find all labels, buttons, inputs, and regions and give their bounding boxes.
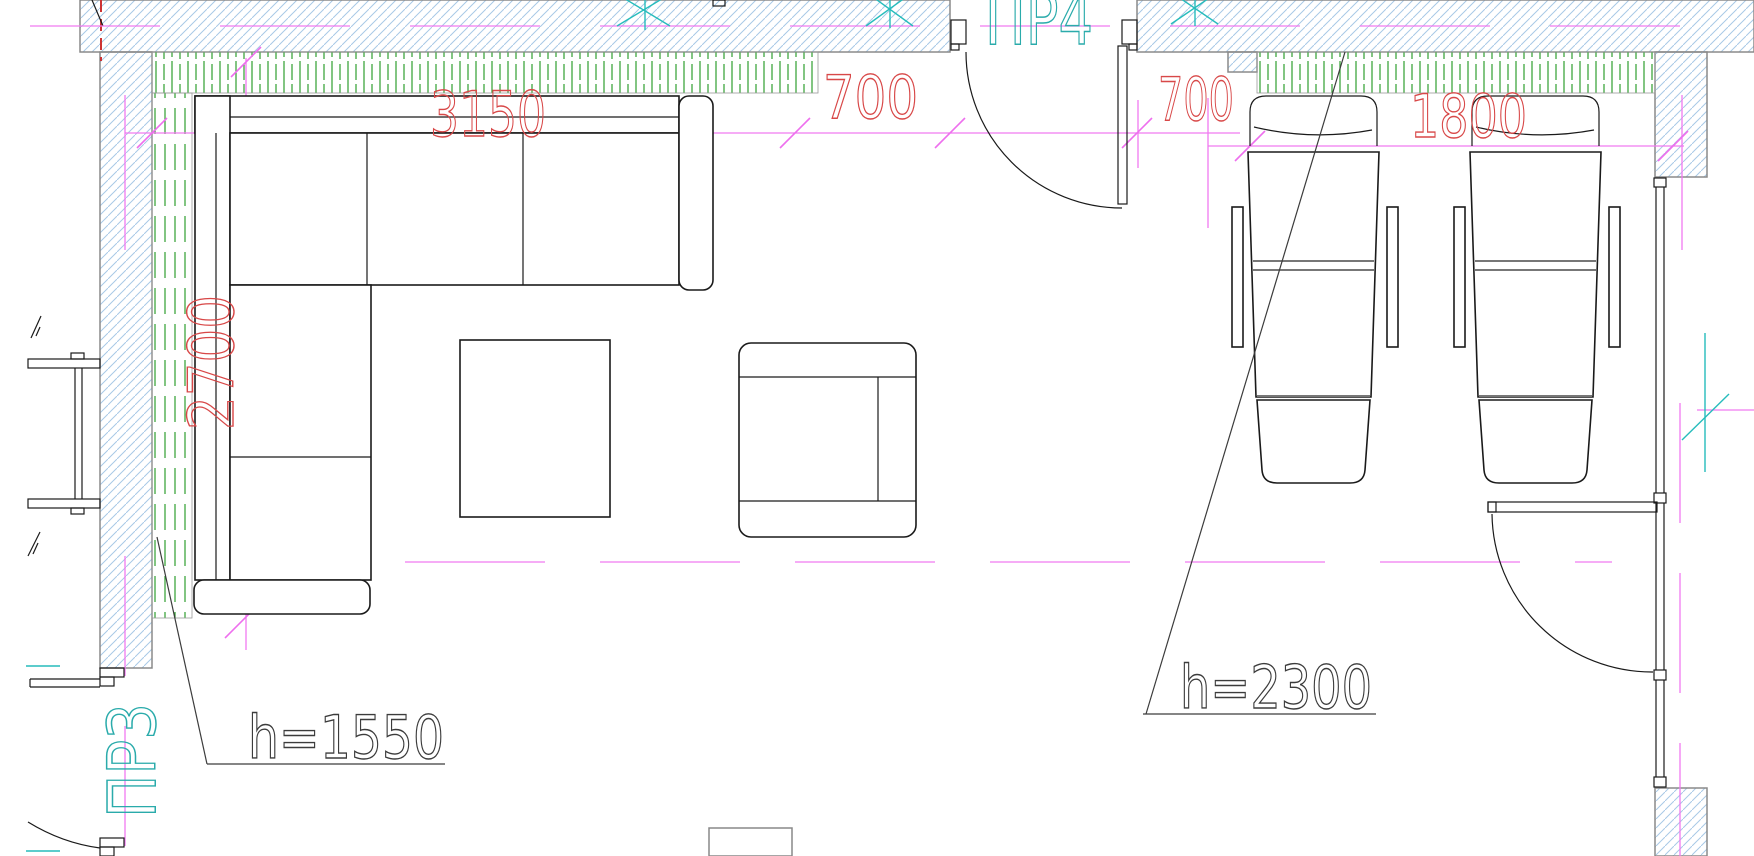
door-right	[1488, 502, 1657, 672]
dimension-2700: 2700	[175, 295, 248, 430]
corner-sofa	[194, 96, 713, 614]
chair-2	[1454, 96, 1620, 483]
door-leaf	[1118, 46, 1127, 204]
chair-1	[1232, 96, 1398, 483]
wall-bottom-right	[1655, 788, 1707, 856]
height-label-chairs: h=2300	[1180, 653, 1372, 723]
dimension-1800: 1800	[1410, 82, 1527, 152]
bottom-furniture-edge	[709, 828, 792, 856]
door-leaf	[1488, 502, 1657, 512]
chair-armrest-left	[1232, 207, 1243, 347]
chair-seat	[1479, 400, 1592, 483]
door-label-pr4: ПР4	[985, 0, 1093, 61]
chair-backrest	[1248, 152, 1379, 397]
window-left	[28, 316, 100, 556]
wall-right-pillar	[1655, 52, 1707, 177]
axis-marker-right	[1682, 333, 1729, 472]
sofa-seats-left	[230, 285, 371, 580]
dimension-700-right: 700	[1158, 65, 1234, 135]
chair-armrest-right	[1387, 207, 1398, 347]
door-swing-arc	[1492, 514, 1653, 672]
coffee-table	[460, 340, 610, 517]
sofa-seats-top	[230, 133, 679, 285]
chair-seat	[1257, 400, 1370, 483]
height-label-sofa: h=1550	[248, 703, 444, 773]
chair-armrest-right	[1609, 207, 1620, 347]
window-wall-right	[1654, 178, 1666, 787]
chair-headrest	[1250, 96, 1377, 146]
floor-plan-canvas: 3150 700 700 1800 2700 h=1550 h=2300 ПР4…	[0, 0, 1754, 856]
chair-backrest	[1470, 152, 1601, 397]
door-label-pr3: ПР3	[94, 703, 171, 818]
dimension-700-left: 700	[823, 63, 918, 133]
wall-left	[100, 52, 152, 668]
chair-armrest-left	[1454, 207, 1465, 347]
sofa-armrest-bottom	[194, 580, 370, 614]
sofa-armrest-right	[679, 96, 713, 290]
door-swing-arc	[966, 52, 1122, 208]
armchair-ottoman	[739, 343, 916, 537]
door-swing-arc	[28, 822, 100, 848]
dimension-3150: 3150	[430, 78, 546, 151]
